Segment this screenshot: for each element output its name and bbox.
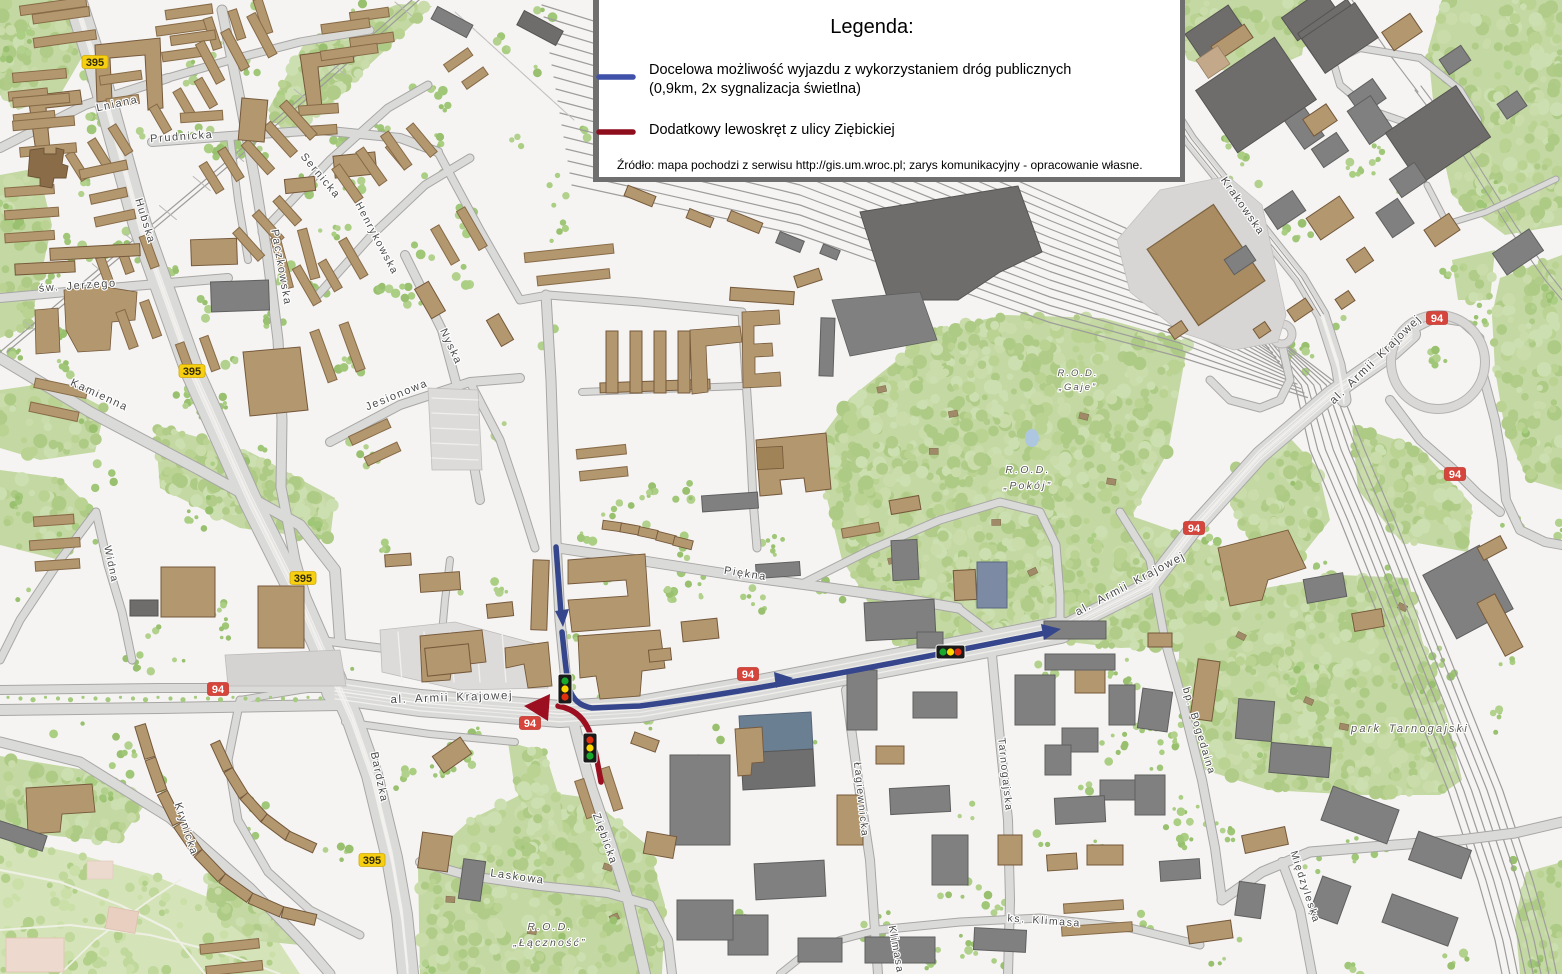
svg-text:Źródło: mapa pochodzi z serwis: Źródło: mapa pochodzi z serwisu http://g… — [617, 157, 1143, 172]
svg-text:R.O.D.: R.O.D. — [527, 921, 572, 933]
svg-text:94: 94 — [524, 718, 537, 730]
svg-text:94: 94 — [1431, 313, 1444, 325]
svg-text:94: 94 — [1449, 469, 1462, 481]
svg-text:395: 395 — [294, 573, 312, 585]
svg-text:Legenda:: Legenda: — [830, 16, 913, 38]
svg-text:94: 94 — [1188, 523, 1201, 535]
svg-text:395: 395 — [86, 57, 104, 69]
svg-text:R.O.D.: R.O.D. — [1005, 464, 1050, 476]
svg-text:„Pokój”: „Pokój” — [1003, 480, 1053, 492]
svg-text:395: 395 — [363, 855, 381, 867]
svg-text:395: 395 — [183, 366, 201, 378]
svg-text:94: 94 — [212, 684, 225, 696]
svg-text:Dodatkowy lewoskręt z ulicy Zi: Dodatkowy lewoskręt z ulicy Ziębickiej — [649, 122, 895, 138]
svg-text:Docelowa możliwość wyjazdu z w: Docelowa możliwość wyjazdu z wykorzystan… — [649, 62, 1071, 78]
svg-text:94: 94 — [742, 669, 755, 681]
svg-text:R.O.D.: R.O.D. — [1057, 368, 1098, 379]
svg-text:„Łączność”: „Łączność” — [512, 937, 586, 949]
svg-text:(0,9km, 2x sygnalizacja świetl: (0,9km, 2x sygnalizacja świetlna) — [649, 81, 861, 97]
svg-text:„Gaje”: „Gaje” — [1058, 382, 1097, 393]
svg-text:park Tarnogajski: park Tarnogajski — [1350, 723, 1469, 735]
